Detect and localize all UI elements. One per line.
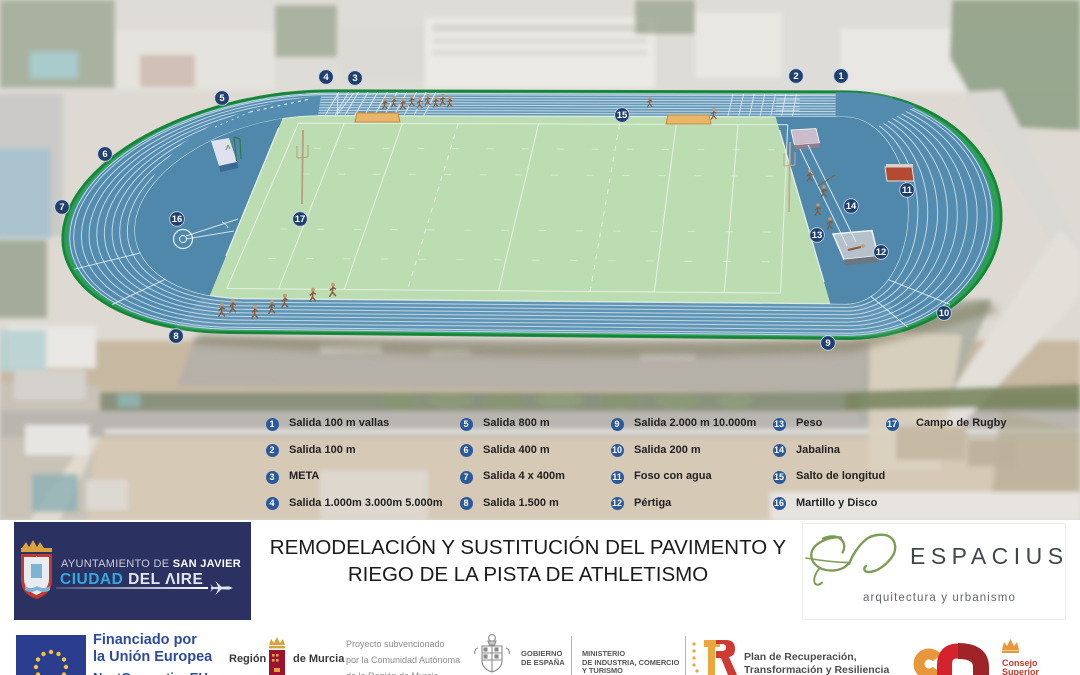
- svg-text:8: 8: [173, 331, 178, 342]
- svg-text:10: 10: [939, 308, 950, 319]
- svg-text:6: 6: [102, 149, 107, 160]
- svg-text:5: 5: [219, 93, 225, 104]
- svg-text:4: 4: [323, 72, 329, 83]
- svg-text:16: 16: [172, 214, 183, 225]
- svg-text:12: 12: [876, 247, 887, 258]
- svg-text:15: 15: [617, 110, 628, 121]
- svg-text:1: 1: [838, 71, 844, 82]
- svg-text:14: 14: [846, 201, 857, 212]
- svg-text:3: 3: [352, 73, 357, 84]
- svg-text:Superior: Superior: [1002, 667, 1040, 675]
- svg-text:11: 11: [902, 185, 913, 196]
- svg-text:13: 13: [812, 230, 823, 241]
- svg-text:9: 9: [825, 338, 830, 349]
- svg-text:17: 17: [295, 214, 306, 225]
- svg-text:7: 7: [59, 202, 64, 213]
- svg-text:2: 2: [793, 71, 798, 82]
